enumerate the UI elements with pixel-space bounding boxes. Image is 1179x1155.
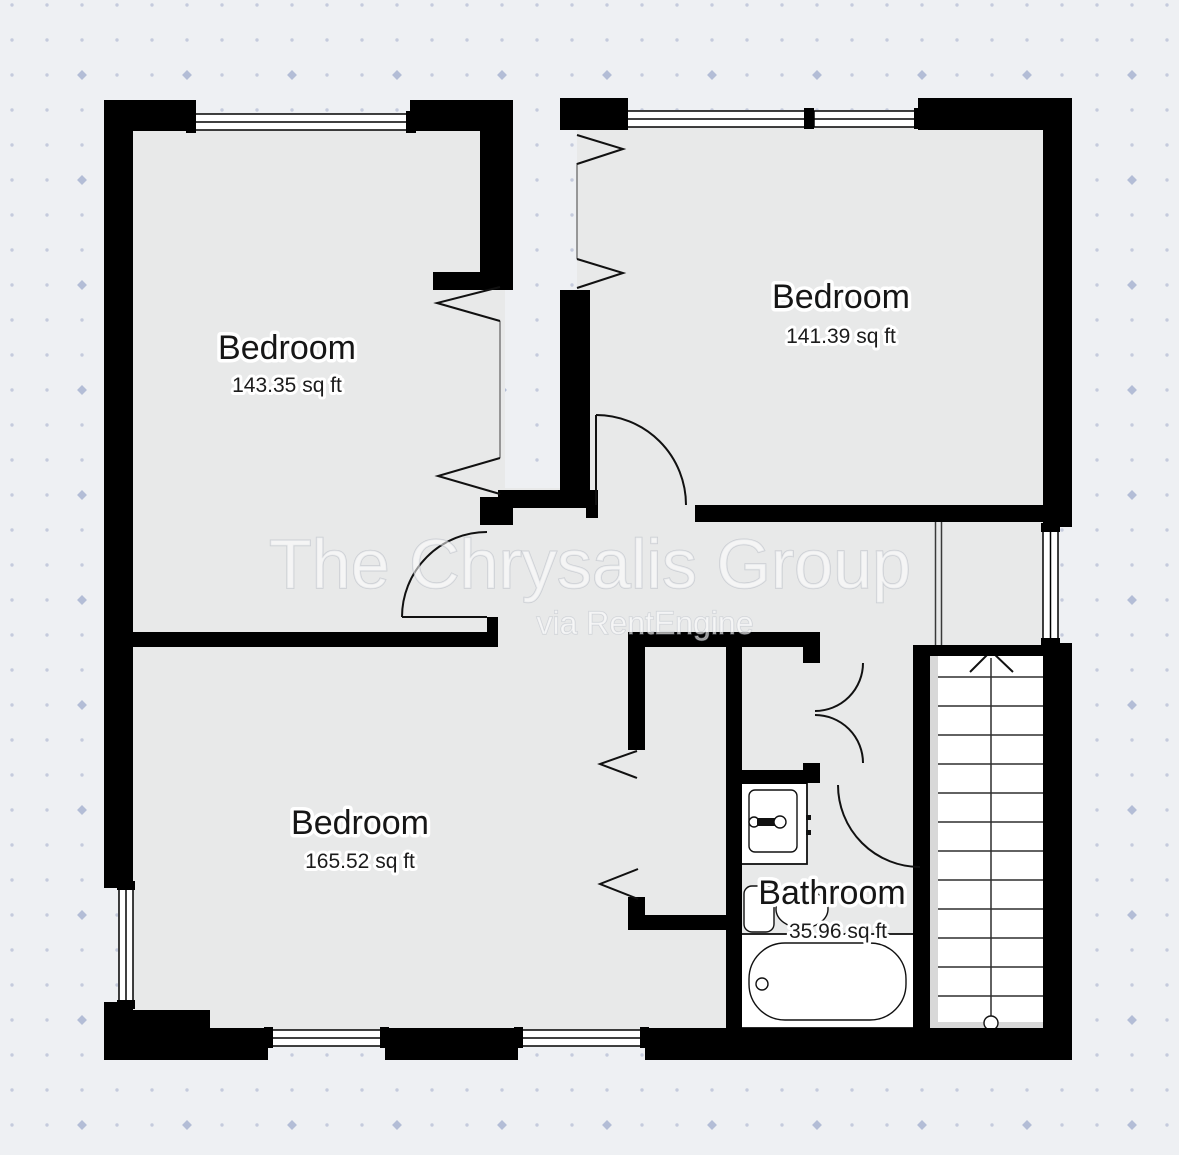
room-area-bedroom-top-right: 141.39 sq ft [786,325,896,348]
sink-icon [739,776,811,864]
window [619,108,814,129]
room-label-bathroom: Bathroom [758,874,905,912]
room-area-bedroom-bottom: 165.52 sq ft [305,850,415,873]
stair-newel-icon [984,1016,998,1030]
room-area-bathroom: 35.96 sq ft [789,920,887,943]
room-label-bedroom-top-left: Bedroom [218,329,356,367]
floorplan-page: The Chrysalis Group via RentEngine Bedro… [0,0,1179,1155]
bathtub-icon [740,934,914,1028]
floor-stair-landing [928,520,1045,650]
window [1041,523,1060,647]
window [186,111,416,133]
room-area-bedroom-top-left: 143.35 sq ft [232,374,342,397]
watermark-primary: The Chrysalis Group [269,525,911,603]
watermark-secondary: via RentEngine [536,605,753,641]
room-label-bedroom-bottom: Bedroom [291,804,429,842]
floorplan-canvas: The Chrysalis Group via RentEngine Bedro… [0,0,1179,1155]
window [814,108,923,129]
window [117,881,135,1009]
window [514,1027,649,1048]
floor-bedroom-bottom-ext [620,925,742,1032]
room-label-bedroom-top-right: Bedroom [772,278,910,316]
stairs [930,651,1045,1030]
window [264,1027,389,1048]
